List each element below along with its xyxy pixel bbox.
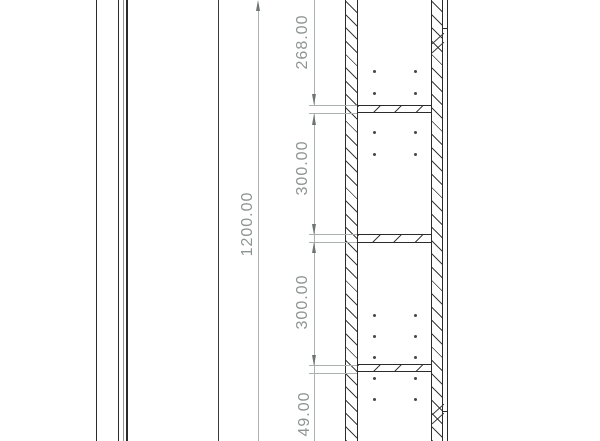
extension-line bbox=[309, 234, 357, 235]
hole-dot bbox=[373, 377, 376, 380]
elevation-tangent-edge bbox=[123, 0, 124, 441]
section-right-wall bbox=[431, 0, 444, 441]
hole-dot bbox=[414, 377, 417, 380]
section-outer-plate-edge bbox=[447, 0, 448, 441]
hole-dot bbox=[414, 335, 417, 338]
hole-dot bbox=[373, 131, 376, 134]
hole-dot bbox=[373, 70, 376, 73]
dimension-arrow-down-icon bbox=[312, 355, 316, 366]
dimension-label: 300.00 bbox=[294, 274, 312, 329]
hole-dot bbox=[414, 131, 417, 134]
hole-dot bbox=[414, 314, 417, 317]
elevation-inner-edge-1 bbox=[118, 0, 119, 441]
elevation-right-edge bbox=[218, 0, 219, 441]
hole-dot bbox=[373, 92, 376, 95]
extension-line bbox=[309, 242, 357, 243]
outer-plate-joint-bottom bbox=[443, 411, 447, 412]
dimension-arrow-down-icon bbox=[312, 94, 316, 105]
hole-dot bbox=[414, 356, 417, 359]
hole-dot bbox=[373, 314, 376, 317]
section-rung-top bbox=[358, 105, 432, 113]
hole-dot bbox=[373, 153, 376, 156]
extension-line bbox=[309, 113, 357, 114]
dimension-arrow-up-icon bbox=[256, 0, 260, 11]
dimension-arrow-up-icon bbox=[312, 242, 316, 253]
extension-line bbox=[309, 105, 357, 106]
hole-dot bbox=[414, 92, 417, 95]
extension-line bbox=[309, 365, 357, 366]
section-rung-middle bbox=[358, 234, 432, 242]
elevation-inner-edge-2 bbox=[126, 0, 128, 441]
hole-dot bbox=[373, 356, 376, 359]
dimension-arrow-down-icon bbox=[312, 224, 316, 235]
hole-dot bbox=[414, 153, 417, 156]
section-rung-bottom bbox=[358, 364, 432, 372]
extension-line bbox=[309, 373, 357, 374]
dimension-label: 49.00 bbox=[296, 391, 314, 436]
dimension-label: 1200.00 bbox=[239, 192, 257, 257]
hole-dot bbox=[414, 70, 417, 73]
hole-dot bbox=[414, 398, 417, 401]
dimension-chain-line bbox=[314, 114, 315, 441]
outer-plate-joint-top bbox=[443, 28, 447, 29]
dimension-label: 300.00 bbox=[294, 141, 312, 196]
hole-dot bbox=[373, 398, 376, 401]
section-left-wall bbox=[345, 0, 358, 441]
hole-dot bbox=[373, 335, 376, 338]
dimension-line bbox=[314, 0, 315, 105]
elevation-outer-left-edge bbox=[96, 0, 97, 441]
dimension-line bbox=[258, 4, 259, 441]
dimension-arrow-up-icon bbox=[312, 114, 316, 125]
drawing-canvas: 268.00 300.00 300.00 1200.00 49.00 bbox=[0, 0, 600, 441]
dimension-label: 268.00 bbox=[294, 15, 312, 70]
